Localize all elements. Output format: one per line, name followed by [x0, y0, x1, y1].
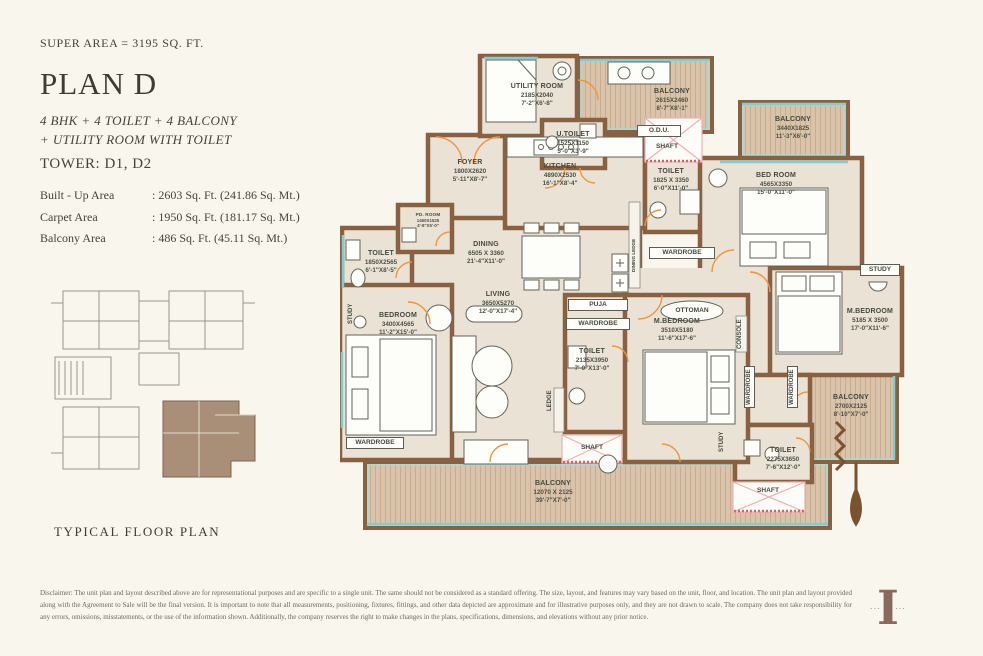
floor-plan: UTILITY ROOM 2185X2040 7'-2"X6'-8" U.TOI… [340, 50, 940, 530]
tower-label: TOWER: D1, D2 [40, 156, 152, 173]
tag-ottoman: OTTOMAN [662, 307, 722, 315]
builtup-area-value: : 2603 Sq. Ft. (241.86 Sq. Mt.) [152, 188, 300, 202]
carpet-area-row: Carpet Area: 1950 Sq. Ft. (181.17 Sq. Mt… [40, 210, 300, 225]
tag-study-top-right: STUDY [860, 264, 900, 276]
tag-odu: O.D.U. [637, 125, 681, 137]
tag-wardrobe-vertical-2: WARDROBE [787, 366, 798, 408]
plan-title: PLAN D [40, 66, 157, 102]
config-line-2: + UTILITY ROOM WITH TOILET [40, 132, 232, 148]
tag-study-vertical-bottom: STUDY [719, 432, 726, 452]
brand-logo-flourish: ··· ✦ ··· [850, 604, 926, 613]
key-plan [43, 283, 265, 483]
key-plan-sketch [43, 283, 265, 483]
tag-shaft-top: SHAFT [643, 143, 691, 151]
tag-ledge: LEDGE [547, 390, 554, 411]
tag-puja: PUJA [568, 299, 628, 311]
tag-shaft-bottom-mid: SHAFT [568, 444, 616, 452]
tag-console: CONSOLE [737, 319, 744, 349]
balcony-area-value: : 486 Sq. Ft. (45.11 Sq. Mt.) [152, 231, 287, 245]
tag-wardrobe-right-top: WARDROBE [649, 247, 715, 259]
tag-dining-ledge: DINING LEDGE [631, 239, 637, 272]
builtup-area-label: Built - Up Area [40, 188, 152, 203]
super-area-text: SUPER AREA = 3195 SQ. FT. [40, 36, 204, 51]
config-line-1: 4 BHK + 4 TOILET + 4 BALCONY [40, 113, 237, 129]
key-plan-caption: TYPICAL FLOOR PLAN [54, 524, 220, 540]
tag-wardrobe-puja: WARDROBE [566, 318, 630, 330]
balcony-area-row: Balcony Area: 486 Sq. Ft. (45.11 Sq. Mt.… [40, 231, 287, 246]
floor-plan-drawing [340, 50, 940, 530]
highlighted-unit [163, 401, 255, 477]
balcony-area-label: Balcony Area [40, 231, 152, 246]
carpet-area-label: Carpet Area [40, 210, 152, 225]
tag-study-left: STUDY [348, 304, 355, 324]
carpet-area-value: : 1950 Sq. Ft. (181.17 Sq. Mt.) [152, 210, 300, 224]
brand-logo: I ··· ✦ ··· [858, 580, 918, 642]
floor-plan-page: { "header": { "super_area": "SUPER AREA … [0, 0, 983, 656]
tag-wardrobe-vertical-1: WARDROBE [744, 366, 755, 408]
tag-wardrobe-bottom-left: WARDROBE [346, 437, 404, 449]
disclaimer-text: Disclaimer: The unit plan and layout des… [40, 588, 852, 624]
tag-shaft-bottom-right: SHAFT [744, 487, 792, 495]
builtup-area-row: Built - Up Area: 2603 Sq. Ft. (241.86 Sq… [40, 188, 300, 203]
